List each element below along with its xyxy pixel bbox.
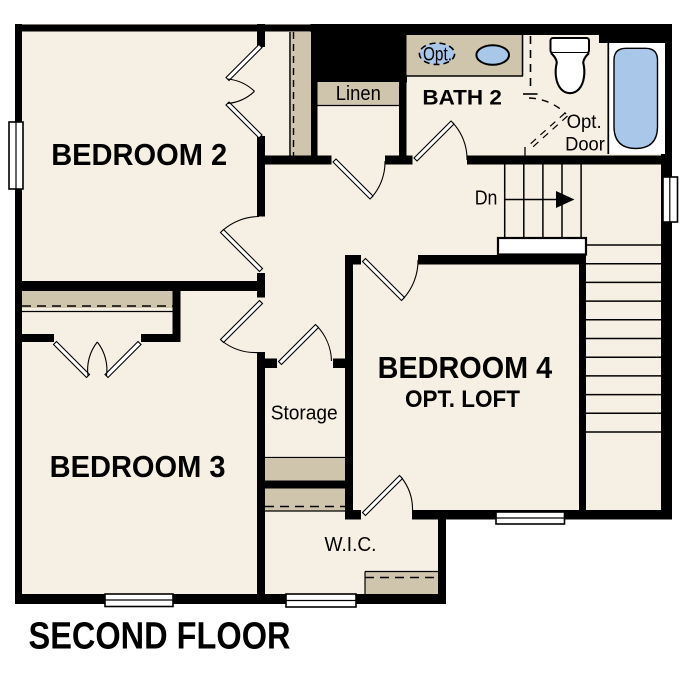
- svg-text:BEDROOM 2: BEDROOM 2: [51, 137, 227, 172]
- svg-text:BEDROOM 4: BEDROOM 4: [378, 350, 553, 385]
- svg-text:OPT. LOFT: OPT. LOFT: [405, 386, 520, 413]
- svg-text:Opt.: Opt.: [567, 111, 602, 133]
- svg-text:BATH 2: BATH 2: [422, 85, 502, 109]
- svg-text:SECOND FLOOR: SECOND FLOOR: [29, 616, 291, 658]
- svg-text:BEDROOM 3: BEDROOM 3: [50, 449, 226, 484]
- svg-text:Dn: Dn: [475, 188, 498, 210]
- svg-text:Linen: Linen: [336, 83, 381, 105]
- svg-text:Opt.: Opt.: [423, 44, 452, 65]
- svg-text:W.I.C.: W.I.C.: [325, 534, 377, 556]
- svg-text:Door: Door: [565, 133, 605, 155]
- svg-text:Storage: Storage: [271, 402, 338, 424]
